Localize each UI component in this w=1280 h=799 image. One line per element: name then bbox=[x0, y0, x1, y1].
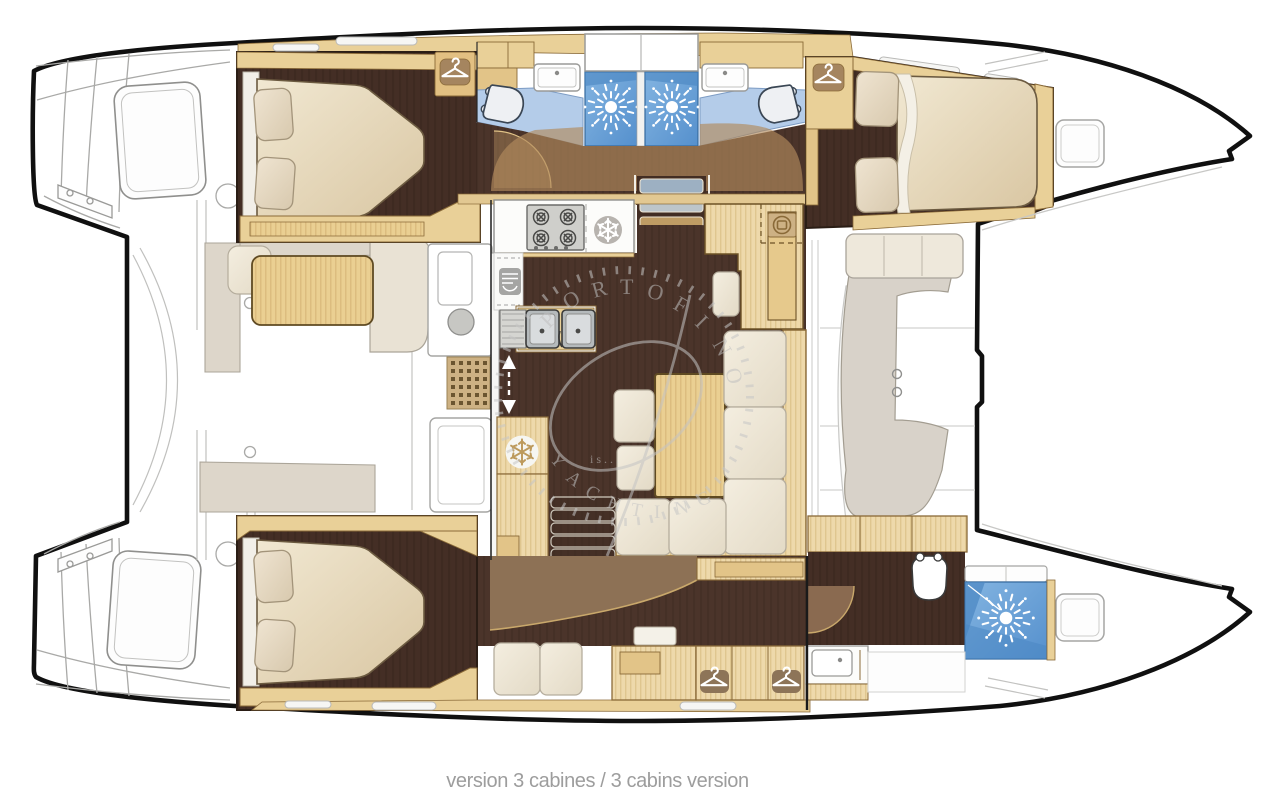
svg-text:is...: is... bbox=[590, 452, 622, 466]
svg-text:T: T bbox=[620, 274, 634, 299]
svg-text:I: I bbox=[654, 502, 660, 523]
